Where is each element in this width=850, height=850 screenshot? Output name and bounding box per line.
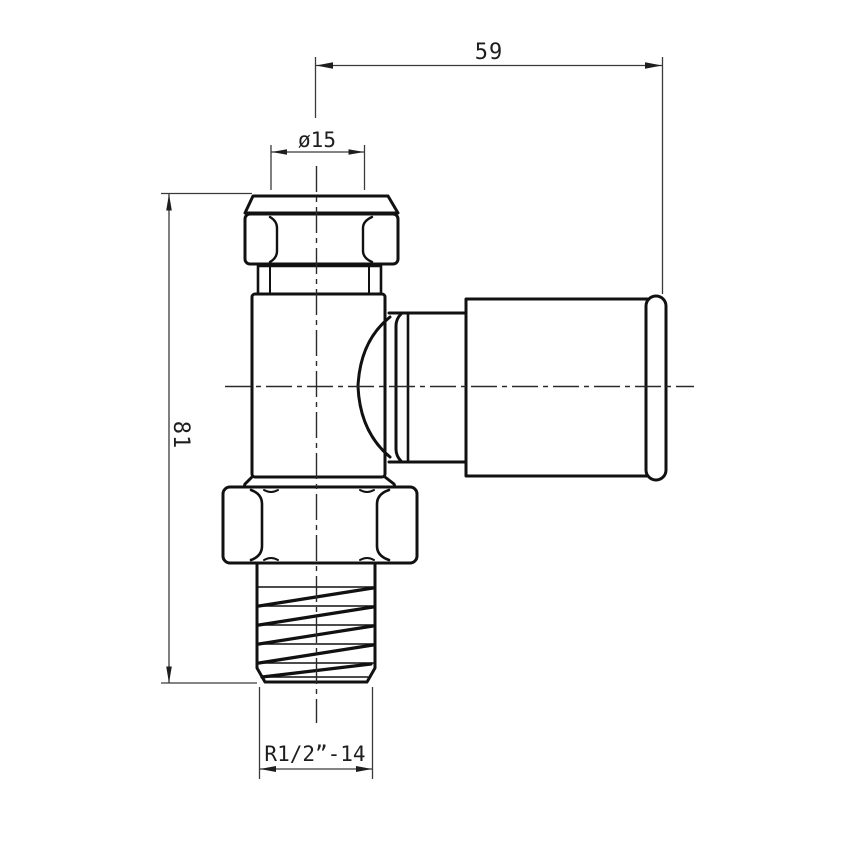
arrowhead-left [272,149,288,155]
label-top-width: 59 [475,40,504,65]
lower-hex-facet-left [251,490,262,560]
arrowhead-left [316,62,333,68]
lower-hex-chamfer-arc-bottom-right [360,558,374,560]
outlet-cylinder [466,299,650,476]
outlet-end-bead [646,296,666,480]
drawing-canvas: 59 ø15 81 R1/2”-14 [0,0,850,850]
lower-hex-chamfer-arc-top-right [360,490,374,492]
label-thread: R1/2”-14 [264,742,365,766]
label-pipe-diameter: ø15 [298,128,336,152]
dimension-lines [161,57,663,779]
lower-hex-facet-right [377,490,389,560]
valve-body [252,294,385,477]
lower-hex-chamfer-arc-top-left [264,490,278,492]
label-overall-height: 81 [168,421,193,450]
top-hex-facet-right [363,217,372,262]
arrowhead-top [166,194,172,211]
arrowhead-right [356,766,372,772]
object-lines [223,196,666,682]
top-hex-nut [245,214,398,264]
dimension-labels: 59 ø15 81 R1/2”-14 [168,40,503,766]
top-hex-facet-left [270,217,277,262]
arrowhead-right [349,149,365,155]
compression-cap [245,196,398,213]
outlet-neck-end-face [396,314,401,461]
arrowhead-right [645,62,662,68]
lower-hex-nut [223,487,417,563]
arrowhead-left [260,766,276,772]
collar-ring [258,266,381,294]
arrowhead-bottom [166,667,172,684]
lower-hex-chamfer-arc-bottom-left [264,558,278,560]
valve-technical-drawing: 59 ø15 81 R1/2”-14 [0,0,850,850]
